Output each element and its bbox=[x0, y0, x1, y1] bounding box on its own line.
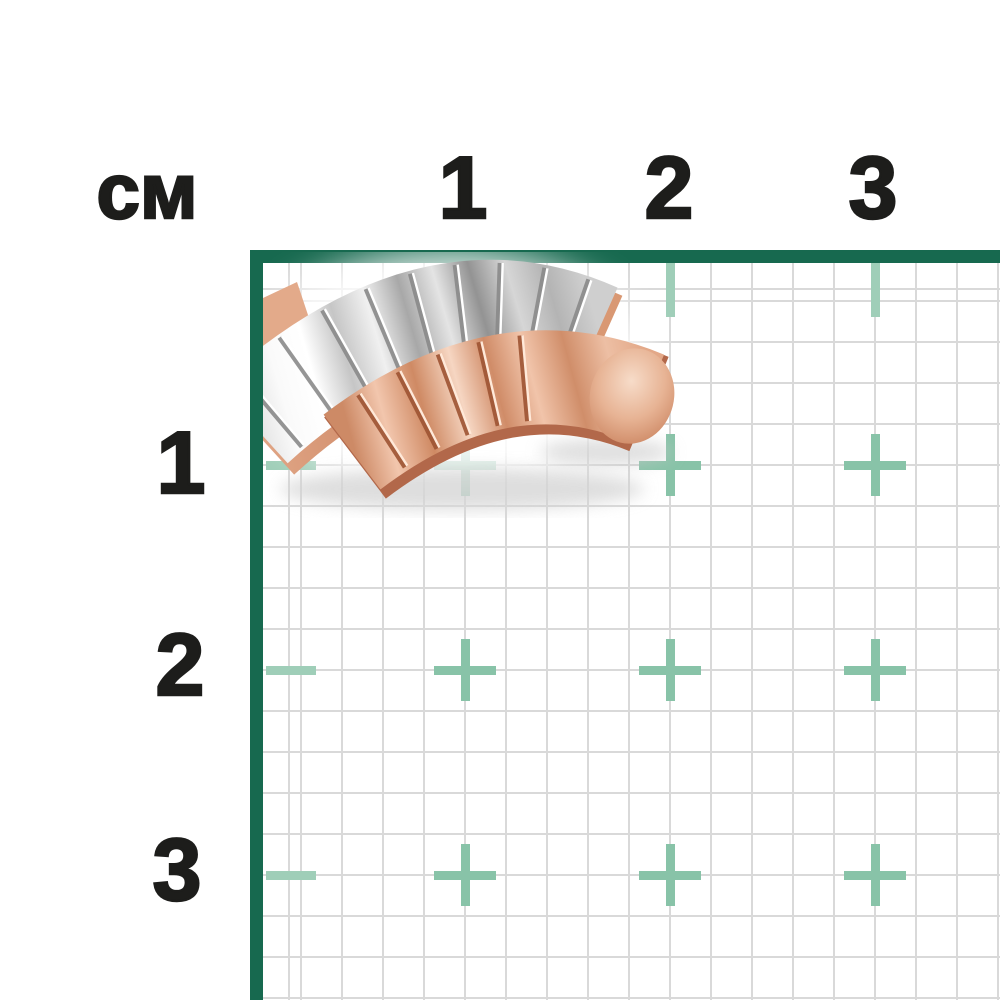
cm-tick-top-1 bbox=[461, 263, 470, 317]
cm-cross-marker bbox=[639, 639, 701, 701]
measurement-photo-canvas: см 1 2 3 1 2 3 bbox=[0, 0, 1000, 1000]
top-axis-label-1: 1 bbox=[439, 144, 488, 232]
cm-cross-marker bbox=[844, 639, 906, 701]
left-axis-label-1: 1 bbox=[157, 419, 206, 507]
ruler-border-top bbox=[250, 250, 1000, 263]
cm-cross-marker bbox=[639, 844, 701, 906]
cm-tick-top-2 bbox=[666, 263, 675, 317]
cm-cross-marker bbox=[844, 844, 906, 906]
ruler-border-left bbox=[250, 250, 263, 1000]
top-axis-label-3: 3 bbox=[849, 144, 898, 232]
top-axis-label-2: 2 bbox=[645, 144, 694, 232]
cm-cross-marker bbox=[639, 434, 701, 496]
cm-tick-left-3 bbox=[266, 871, 316, 880]
cm-tick-left-2 bbox=[266, 666, 316, 675]
left-axis-label-3: 3 bbox=[153, 826, 202, 914]
cm-cross-marker bbox=[844, 434, 906, 496]
cm-cross-marker bbox=[434, 434, 496, 496]
cm-cross-marker bbox=[434, 844, 496, 906]
cm-tick-top-3 bbox=[871, 263, 880, 317]
unit-label-cm: см bbox=[96, 152, 197, 230]
left-axis-label-2: 2 bbox=[156, 621, 205, 709]
cm-tick-left-1 bbox=[266, 461, 316, 470]
cm-cross-marker bbox=[434, 639, 496, 701]
